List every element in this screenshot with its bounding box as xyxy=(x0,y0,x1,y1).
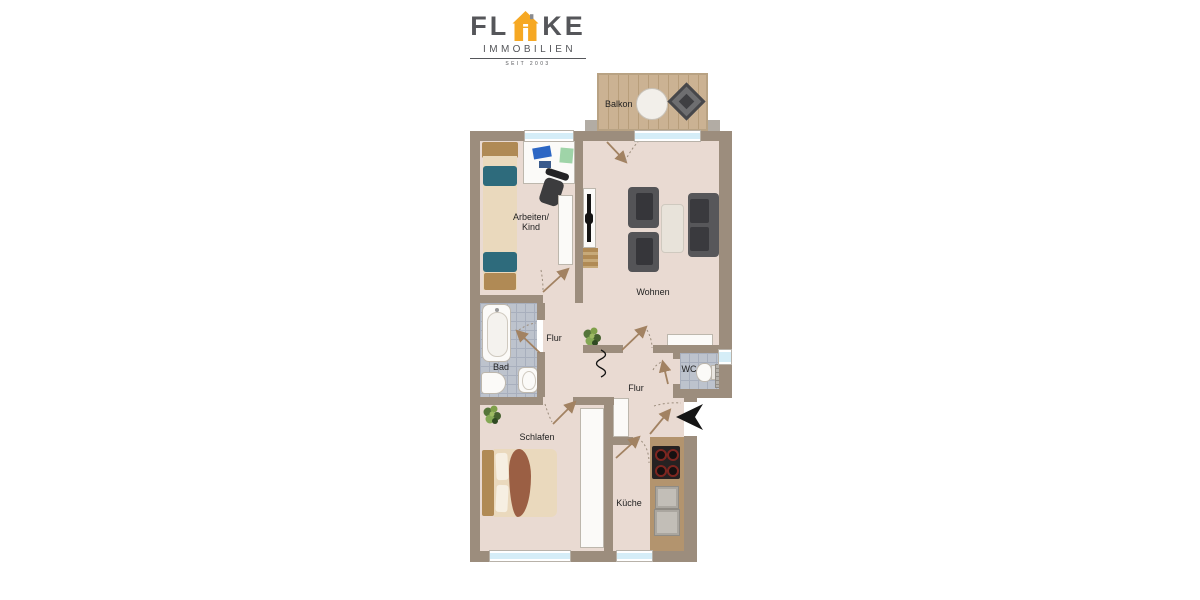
window-arbeiten xyxy=(525,131,573,141)
logo-text-right: KE xyxy=(542,11,586,41)
room-label-arbeiten-kind: Arbeiten/ Kind xyxy=(513,212,549,232)
room-label-kueche: Küche xyxy=(616,498,642,508)
window-kueche xyxy=(617,551,652,561)
room-label-flur-lower: Flur xyxy=(628,383,644,393)
room-label-wc: WC xyxy=(682,364,697,374)
logo-subtitle: IMMOBILIEN xyxy=(468,44,588,55)
logo-text-left: FL xyxy=(470,11,509,41)
room-label-flur-upper: Flur xyxy=(546,333,562,343)
window-schlafen xyxy=(490,551,570,561)
squiggle-symbol-icon xyxy=(597,350,606,377)
room-label-schlafen: Schlafen xyxy=(519,432,554,442)
window-balcony-door xyxy=(635,131,700,141)
house-icon xyxy=(512,11,539,41)
logo: FL KE IMMOBILIEN SEIT 2003 xyxy=(468,11,588,67)
entrance-arrow-icon xyxy=(676,404,703,430)
room-label-wohnen: Wohnen xyxy=(636,287,669,297)
floor-plan: Balkon xyxy=(470,73,732,562)
door-swing-icon xyxy=(470,73,732,562)
window-wc xyxy=(719,350,731,364)
logo-divider xyxy=(470,58,586,59)
brand-wordmark: FL KE xyxy=(468,11,588,41)
logo-tagline: SEIT 2003 xyxy=(468,61,588,67)
room-label-bad: Bad xyxy=(493,362,509,372)
